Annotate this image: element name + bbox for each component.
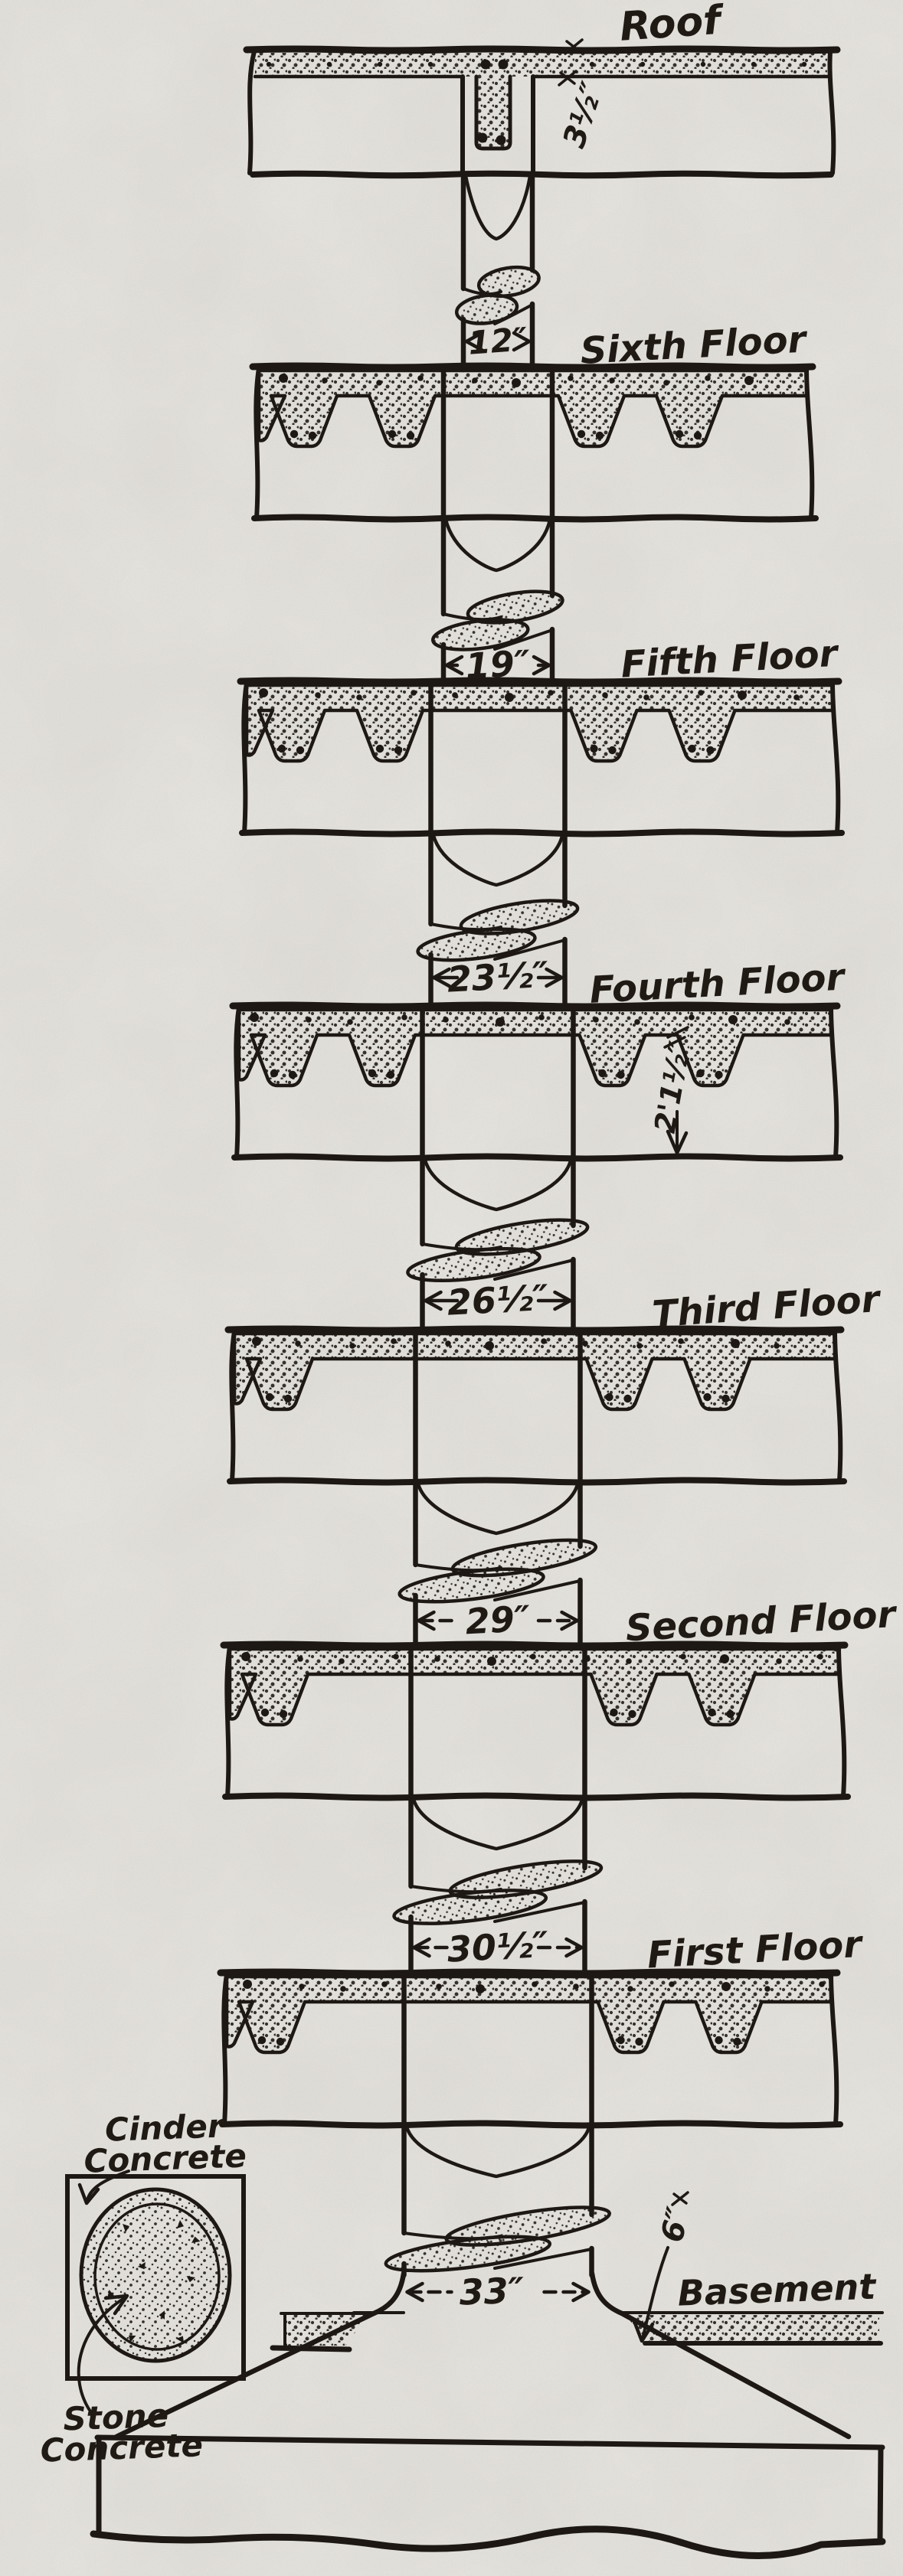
book-page: Roof3½″Sixth FloorFifth FloorFourth Floo…	[0, 0, 903, 2576]
structural-section-diagram	[0, 0, 903, 2576]
